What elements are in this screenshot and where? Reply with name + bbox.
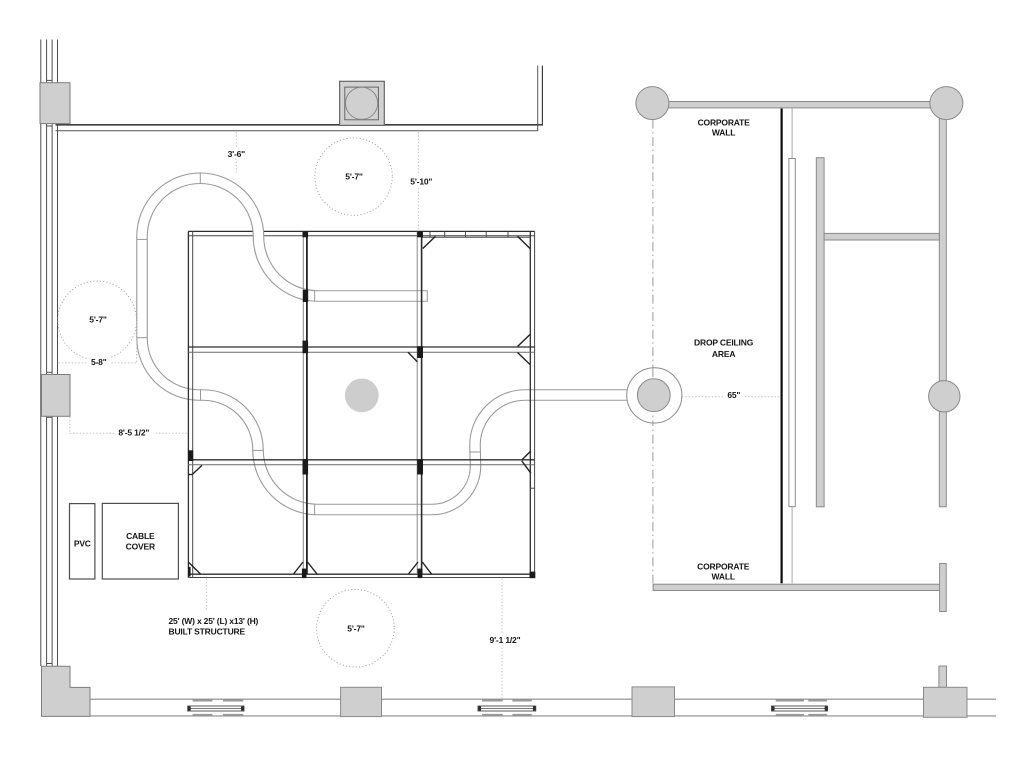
svg-text:WALL: WALL (712, 572, 735, 582)
svg-text:DROP CEILING: DROP CEILING (694, 337, 754, 347)
svg-text:8'-5 1/2": 8'-5 1/2" (118, 427, 149, 437)
svg-text:CABLE: CABLE (126, 531, 155, 541)
svg-text:5'-7": 5'-7" (347, 623, 365, 633)
svg-text:PVC: PVC (74, 539, 91, 549)
svg-text:65": 65" (727, 390, 740, 400)
svg-text:3'-6": 3'-6" (228, 149, 246, 159)
svg-text:BUILT STRUCTURE: BUILT STRUCTURE (169, 627, 246, 637)
svg-text:WALL: WALL (712, 128, 735, 138)
svg-text:5-8": 5-8" (91, 357, 107, 367)
svg-text:9'-1 1/2": 9'-1 1/2" (490, 635, 521, 645)
svg-text:5'-10": 5'-10" (410, 177, 432, 187)
svg-text:25' (W) x 25' (L) x13' (H): 25' (W) x 25' (L) x13' (H) (169, 616, 259, 626)
svg-text:5'-7": 5'-7" (345, 172, 363, 182)
svg-text:5'-7": 5'-7" (89, 314, 107, 324)
svg-text:CORPORATE: CORPORATE (698, 117, 751, 127)
svg-text:CORPORATE: CORPORATE (697, 562, 750, 572)
svg-text:COVER: COVER (126, 541, 155, 551)
svg-text:AREA: AREA (712, 349, 735, 359)
